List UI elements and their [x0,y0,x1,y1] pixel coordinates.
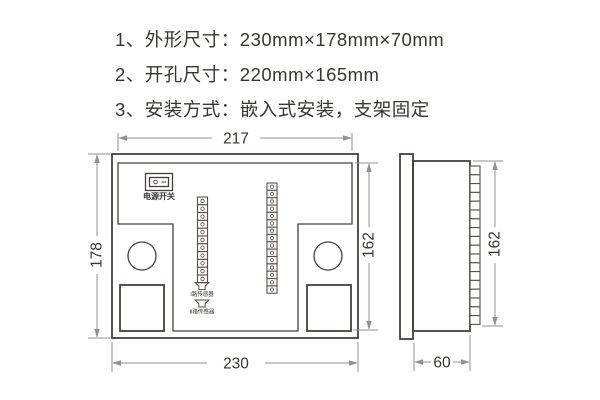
terminal-cell [198,220,208,228]
mounting-hole-right [314,242,342,270]
dim-width-bottom-value: 230 [223,356,249,373]
sensor-connector-1-icon [195,283,209,290]
sensor2-label: Ⅱ路传感器 [190,308,215,316]
dim-height-right: 162 [353,163,378,330]
terminal-cell [470,245,480,254]
terminal-cell [267,264,277,271]
dim-height-right-value: 162 [361,232,378,258]
cutout-left [120,285,164,331]
terminal-cell [470,289,480,298]
dim-side-depth-value: 60 [433,355,451,372]
terminal-stack-side [470,166,480,324]
terminal-cell [470,254,480,263]
terminal-cell [198,244,208,252]
terminal-cell [198,228,208,236]
terminal-cell [267,227,277,234]
terminal-cell [198,259,208,267]
terminal-cell [267,212,277,219]
back-view: 电源开关 Ⅰ路传感器 Ⅱ路传感器 [112,154,358,338]
terminal-cell [470,316,480,325]
terminal-cell [470,236,480,245]
terminal-cell [198,236,208,244]
terminal-cell [198,205,208,213]
terminal-cell [267,183,277,190]
terminal-cell [267,279,277,286]
dim-height-left: 178 [88,154,110,338]
terminal-cell [470,166,480,175]
terminal-cell [470,298,480,307]
sensor1-label: Ⅰ路传感器 [190,290,214,298]
terminal-cell [267,234,277,241]
terminal-cell [470,201,480,210]
terminal-cell [267,271,277,278]
terminal-cell [198,275,208,283]
terminal-cell [267,242,277,249]
terminal-cell [267,220,277,227]
terminal-strip-left [198,197,208,283]
side-body [413,161,470,331]
terminal-cell [267,286,277,293]
terminal-cell [267,190,277,197]
terminal-cell [470,263,480,272]
terminal-cell [267,205,277,212]
dim-width-top-value: 217 [223,131,249,148]
terminal-cell [470,175,480,184]
power-switch [146,174,173,191]
terminal-cell [198,197,208,205]
terminal-cell [267,249,277,256]
terminal-cell [470,280,480,289]
switch-on-icon [154,180,158,184]
terminal-cell [470,210,480,219]
terminal-cell [267,257,277,264]
terminal-strip-right [267,183,277,293]
terminal-cell [470,272,480,281]
terminal-cell [470,228,480,237]
dim-side-depth: 60 [414,335,470,372]
terminal-cell [470,307,480,316]
terminal-cell [470,219,480,228]
dim-side-height-value: 162 [487,231,504,257]
cutout-right [307,285,351,331]
dimension-drawing: 电源开关 Ⅰ路传感器 Ⅱ路传感器 217 178 [0,0,600,400]
terminal-cell [267,198,277,205]
side-view [400,154,480,339]
sensor-connector-2-icon [195,300,209,307]
power-switch-label: 电源开关 [143,191,175,201]
dim-width-bottom: 230 [112,342,358,373]
terminal-cell [198,267,208,275]
side-front-bezel [400,154,413,339]
terminal-cell [470,184,480,193]
mounting-hole-left [128,242,156,270]
terminal-cell [198,252,208,260]
dim-width-top: 217 [118,131,352,152]
dim-height-left-value: 178 [89,242,106,268]
terminal-cell [470,192,480,201]
terminal-cell [198,213,208,221]
